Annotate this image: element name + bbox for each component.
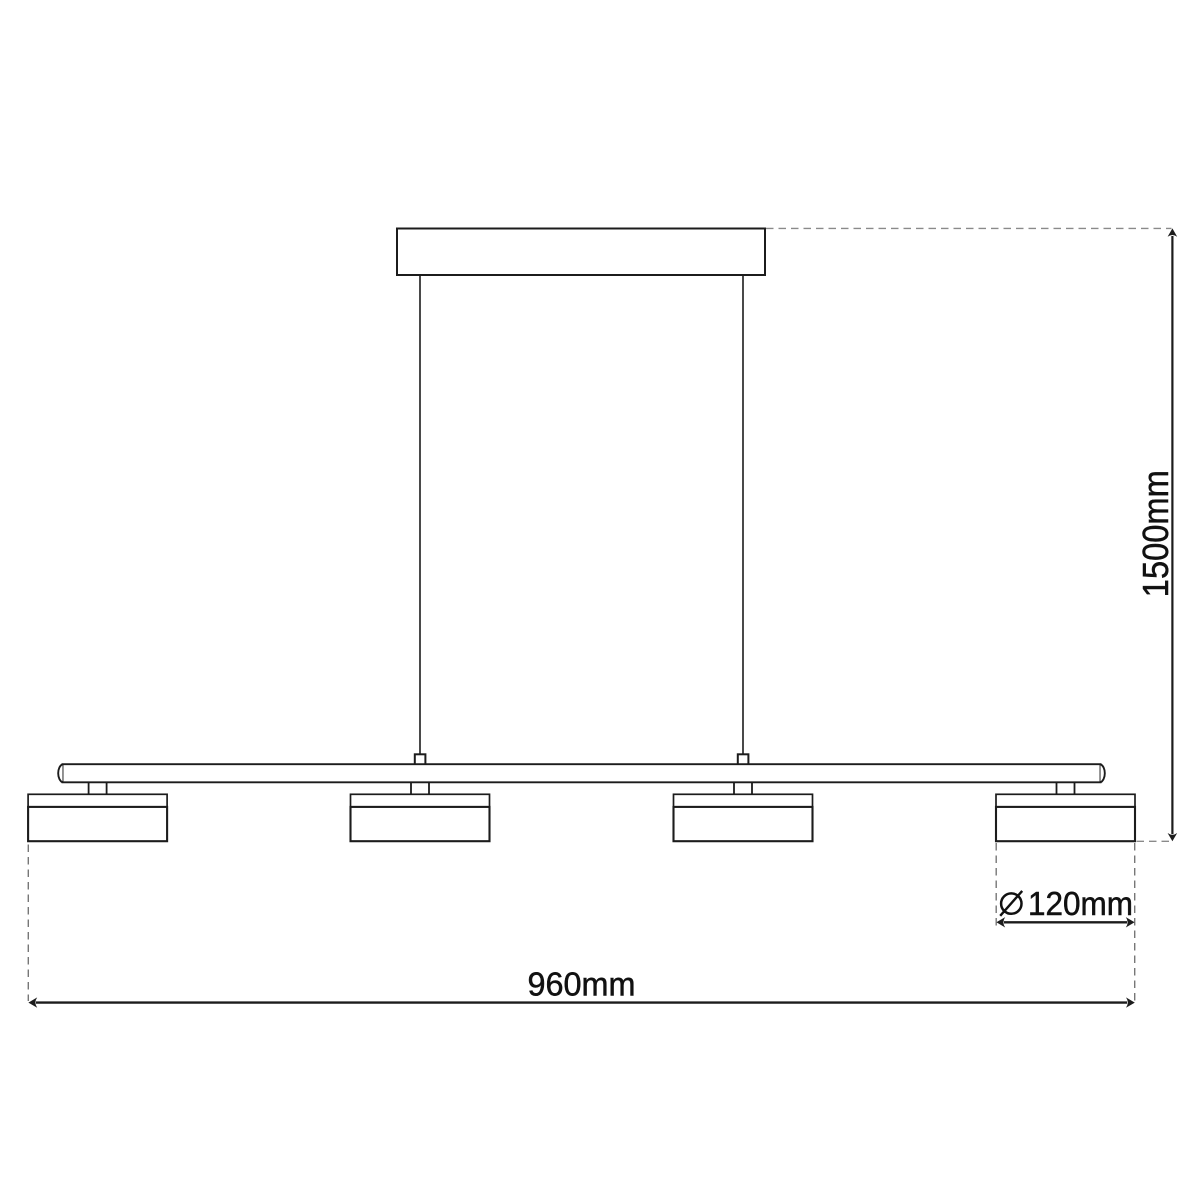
svg-text:1500mm: 1500mm <box>1135 470 1176 597</box>
svg-text:120mm: 120mm <box>1028 885 1133 922</box>
svg-text:960mm: 960mm <box>528 965 636 1002</box>
